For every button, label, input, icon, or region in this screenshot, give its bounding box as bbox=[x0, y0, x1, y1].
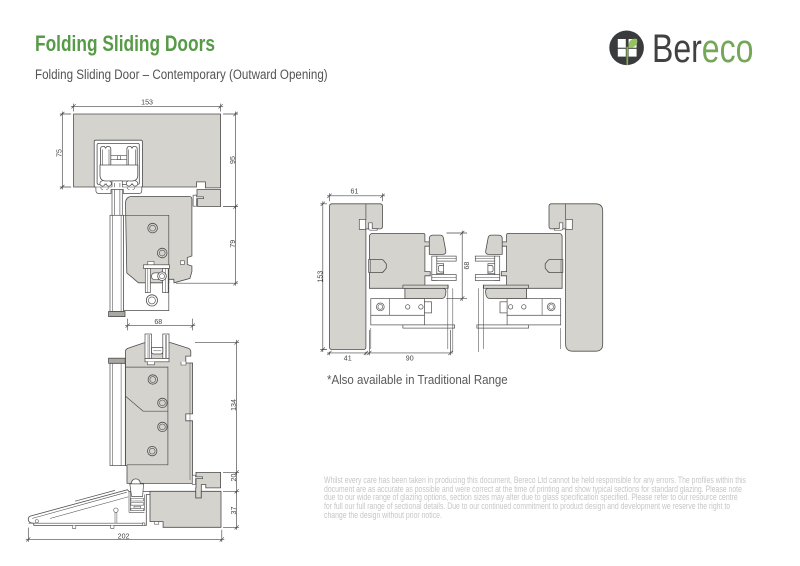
svg-text:202: 202 bbox=[118, 533, 130, 541]
svg-text:20: 20 bbox=[230, 474, 238, 482]
svg-text:153: 153 bbox=[316, 271, 324, 283]
svg-text:79: 79 bbox=[229, 240, 237, 248]
svg-text:61: 61 bbox=[351, 187, 359, 195]
svg-text:68: 68 bbox=[463, 262, 471, 270]
svg-text:134: 134 bbox=[230, 399, 238, 411]
svg-text:75: 75 bbox=[55, 149, 63, 157]
svg-text:95: 95 bbox=[229, 156, 237, 164]
svg-text:153: 153 bbox=[141, 99, 153, 107]
svg-text:68: 68 bbox=[154, 318, 162, 326]
svg-text:90: 90 bbox=[406, 354, 414, 362]
svg-text:37: 37 bbox=[230, 507, 238, 515]
svg-text:41: 41 bbox=[344, 354, 352, 362]
